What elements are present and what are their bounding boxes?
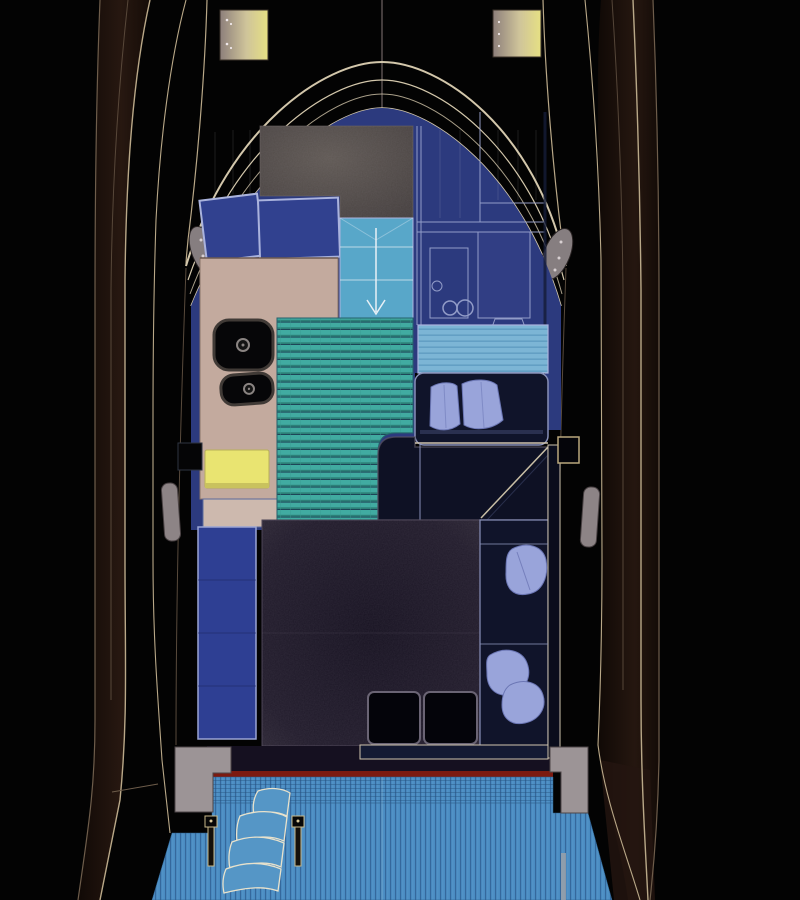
- cockpit-sofa-wall: [548, 445, 560, 758]
- foredeck-hatch-port: [220, 10, 268, 60]
- cockpit-hatch-starboard: [424, 692, 477, 744]
- berth-cushion-port-inner: [258, 198, 340, 260]
- cockpit-corner-seat: [378, 437, 548, 520]
- saloon-sofa: [415, 373, 548, 445]
- platform-trim-bar: [561, 853, 566, 900]
- foredeck-hatch-starboard: [493, 10, 541, 57]
- platform-stair-4: [223, 863, 281, 893]
- cockpit-sofa-step: [360, 745, 548, 759]
- port-bench: [198, 527, 256, 739]
- locker-yellow: [205, 450, 269, 488]
- side-walkway-starboard: [418, 325, 548, 373]
- hull-shading-starboard: [598, 0, 659, 900]
- cockpit-pillow-1: [506, 545, 547, 594]
- side-gate-starboard: [558, 437, 579, 463]
- transom-edge-red: [207, 771, 553, 777]
- console-fixture-large: [214, 320, 273, 370]
- yacht-deck-plan: [0, 0, 800, 900]
- console-fixture-small: [220, 372, 274, 406]
- berth-cushion-port-outer: [199, 194, 264, 263]
- side-gate-port: [178, 443, 202, 470]
- swim-platform: [152, 777, 612, 900]
- deck-plan-canvas: [0, 0, 800, 900]
- cockpit-hatch-port: [368, 692, 420, 744]
- companionway-stairs: [340, 218, 413, 318]
- side-boarding-pad-port: [161, 483, 181, 542]
